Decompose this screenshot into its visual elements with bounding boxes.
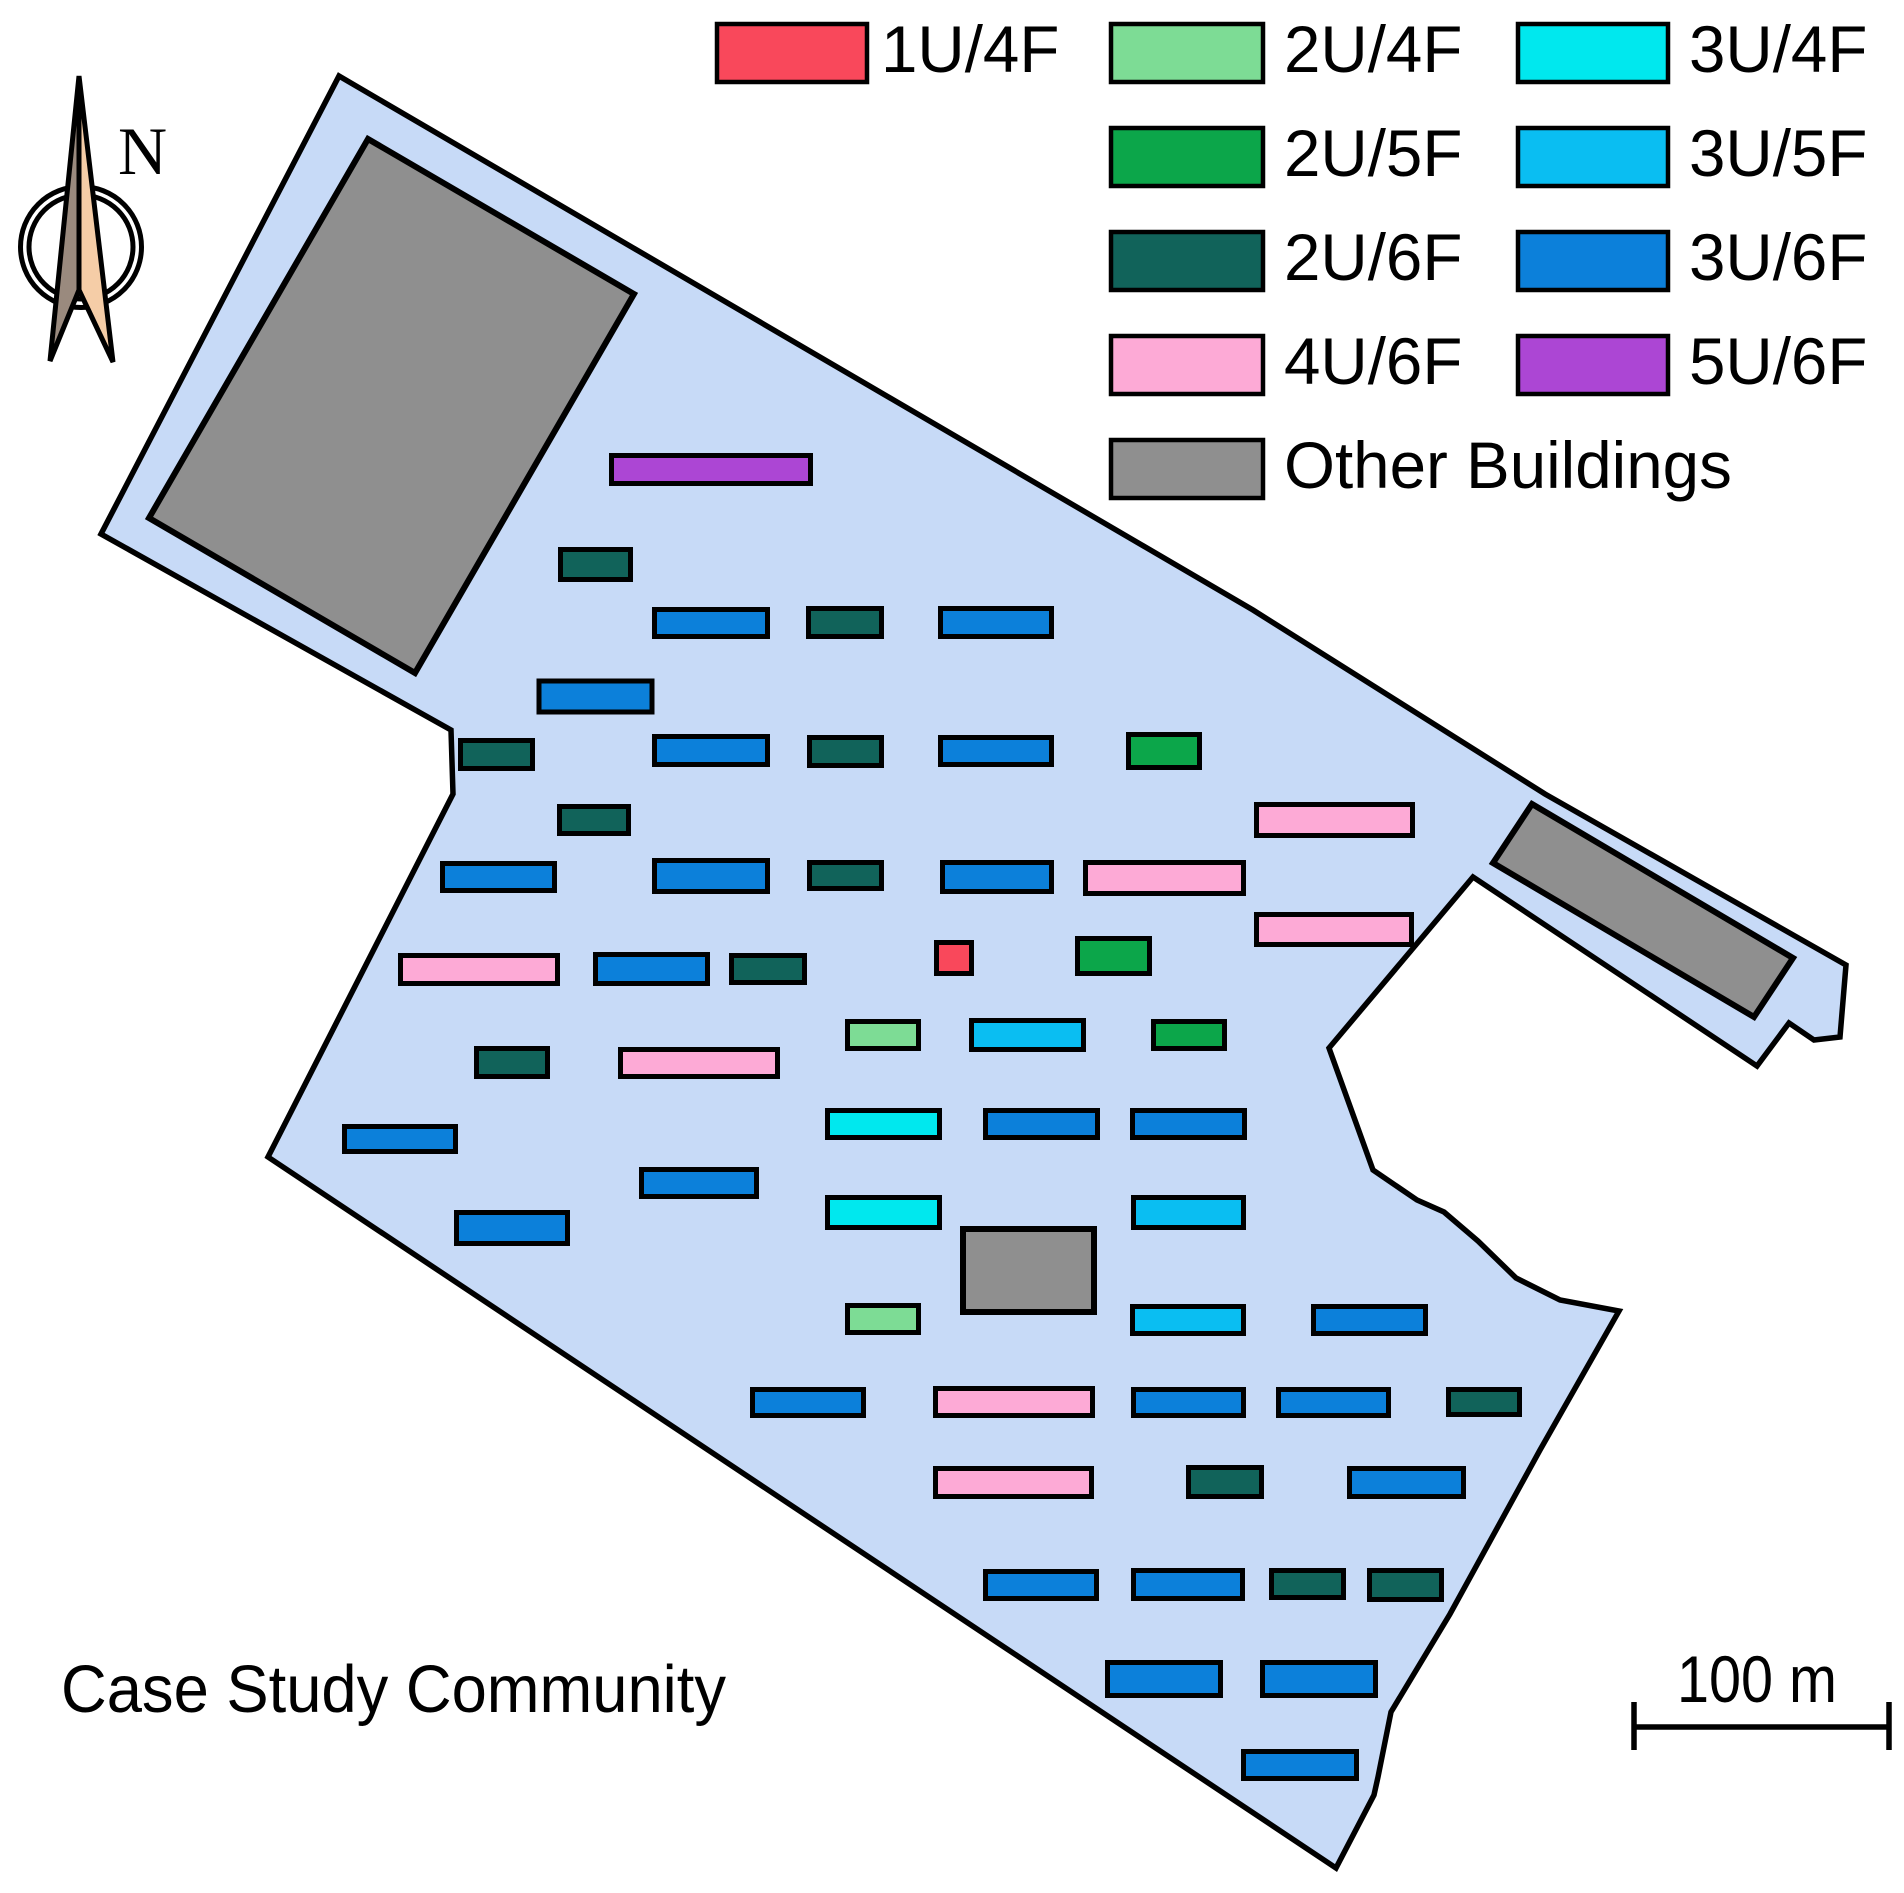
svg-text:3U/5F: 3U/5F [1689,117,1867,190]
svg-text:4U/6F: 4U/6F [1284,325,1462,398]
svg-text:1U/4F: 1U/4F [881,13,1059,86]
svg-text:2U/4F: 2U/4F [1284,13,1462,86]
svg-text:2U/6F: 2U/6F [1284,221,1462,294]
svg-text:100 m: 100 m [1677,1642,1837,1716]
svg-text:3U/4F: 3U/4F [1689,13,1867,86]
svg-text:3U/6F: 3U/6F [1689,221,1867,294]
svg-text:5U/6F: 5U/6F [1689,325,1867,398]
svg-text:N: N [118,113,167,189]
svg-text:Other Buildings: Other Buildings [1284,429,1732,502]
svg-text:Case Study Community: Case Study Community [61,1652,726,1727]
svg-text:2U/5F: 2U/5F [1284,117,1462,190]
